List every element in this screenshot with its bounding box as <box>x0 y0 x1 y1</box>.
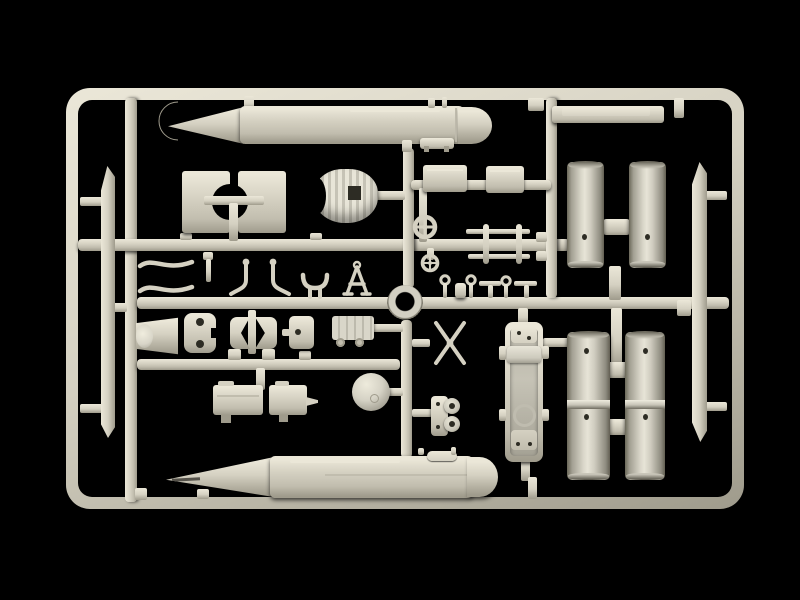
gate-stub <box>135 488 147 500</box>
gate-stub <box>528 477 537 499</box>
sphere-part <box>352 373 390 411</box>
bracket-t-stem <box>229 203 238 241</box>
cart-part <box>332 316 374 340</box>
torpedo-upper-mast <box>428 98 435 108</box>
sprue-photo <box>0 0 800 600</box>
ring-seal <box>387 285 423 321</box>
runner-horizontal-upper <box>78 239 570 251</box>
gate-stub <box>609 266 621 300</box>
runner-vertical-left <box>125 98 137 502</box>
gate-stub <box>705 191 727 200</box>
torpedo-upper-mast <box>442 97 447 108</box>
pump-box-b <box>269 385 307 415</box>
equipment-box-b <box>486 166 524 193</box>
handwheel-small <box>419 252 441 274</box>
flat-bar <box>552 106 664 123</box>
gate-stub <box>113 303 127 312</box>
ribbed-shell <box>314 169 378 223</box>
gate-stub <box>180 233 192 240</box>
gate-stub <box>677 300 691 316</box>
tube-connector <box>603 219 630 235</box>
tube-upper-left <box>567 162 604 268</box>
gate-stub <box>228 349 241 360</box>
tube-upper-right <box>629 162 666 268</box>
gate-stub <box>376 191 405 200</box>
runner-horizontal-left-lower <box>137 359 400 370</box>
torpedo-lower-mast <box>418 448 424 455</box>
grab-handle <box>299 272 331 298</box>
tube-lower-left <box>567 332 610 480</box>
hinge-plate <box>184 313 216 353</box>
nose-crescent-part <box>156 99 182 143</box>
gate-stub <box>372 324 403 332</box>
gate-stub <box>262 349 275 360</box>
torpedo-upper-skid <box>420 138 454 149</box>
equipment-box-a <box>423 165 467 192</box>
lever-part <box>259 256 297 298</box>
gate-stub <box>388 388 403 396</box>
tube-lower-right <box>625 332 665 480</box>
gate-stub <box>197 489 209 499</box>
hose-pair <box>137 253 195 299</box>
pump-box-a <box>213 385 263 415</box>
runner-horizontal-middle <box>137 297 729 309</box>
gate-stub <box>80 404 104 413</box>
clamshell-stem <box>248 310 256 354</box>
runner-vertical-550 <box>546 98 557 298</box>
pin-part <box>206 259 211 282</box>
gate-stub <box>299 351 311 360</box>
gate-stub <box>402 140 412 152</box>
hatch-door <box>289 316 314 349</box>
blade-right <box>692 162 707 442</box>
bucket-part <box>136 317 178 355</box>
blade-left <box>101 166 115 438</box>
lever-part <box>225 256 263 298</box>
a-frame-part <box>341 260 373 298</box>
x-propeller <box>428 320 472 366</box>
gate-stub <box>536 232 547 242</box>
gate-stub <box>536 251 547 261</box>
gate-stub <box>611 308 622 368</box>
handwheel-large <box>410 212 440 242</box>
gate-stub <box>528 98 544 111</box>
gate-stub <box>80 197 104 206</box>
gate-stub <box>412 409 432 417</box>
gate-stub <box>310 233 322 240</box>
gate-stub <box>674 98 684 118</box>
torpedo-lower-body <box>270 456 473 498</box>
torpedo-lower-mast <box>451 447 456 455</box>
